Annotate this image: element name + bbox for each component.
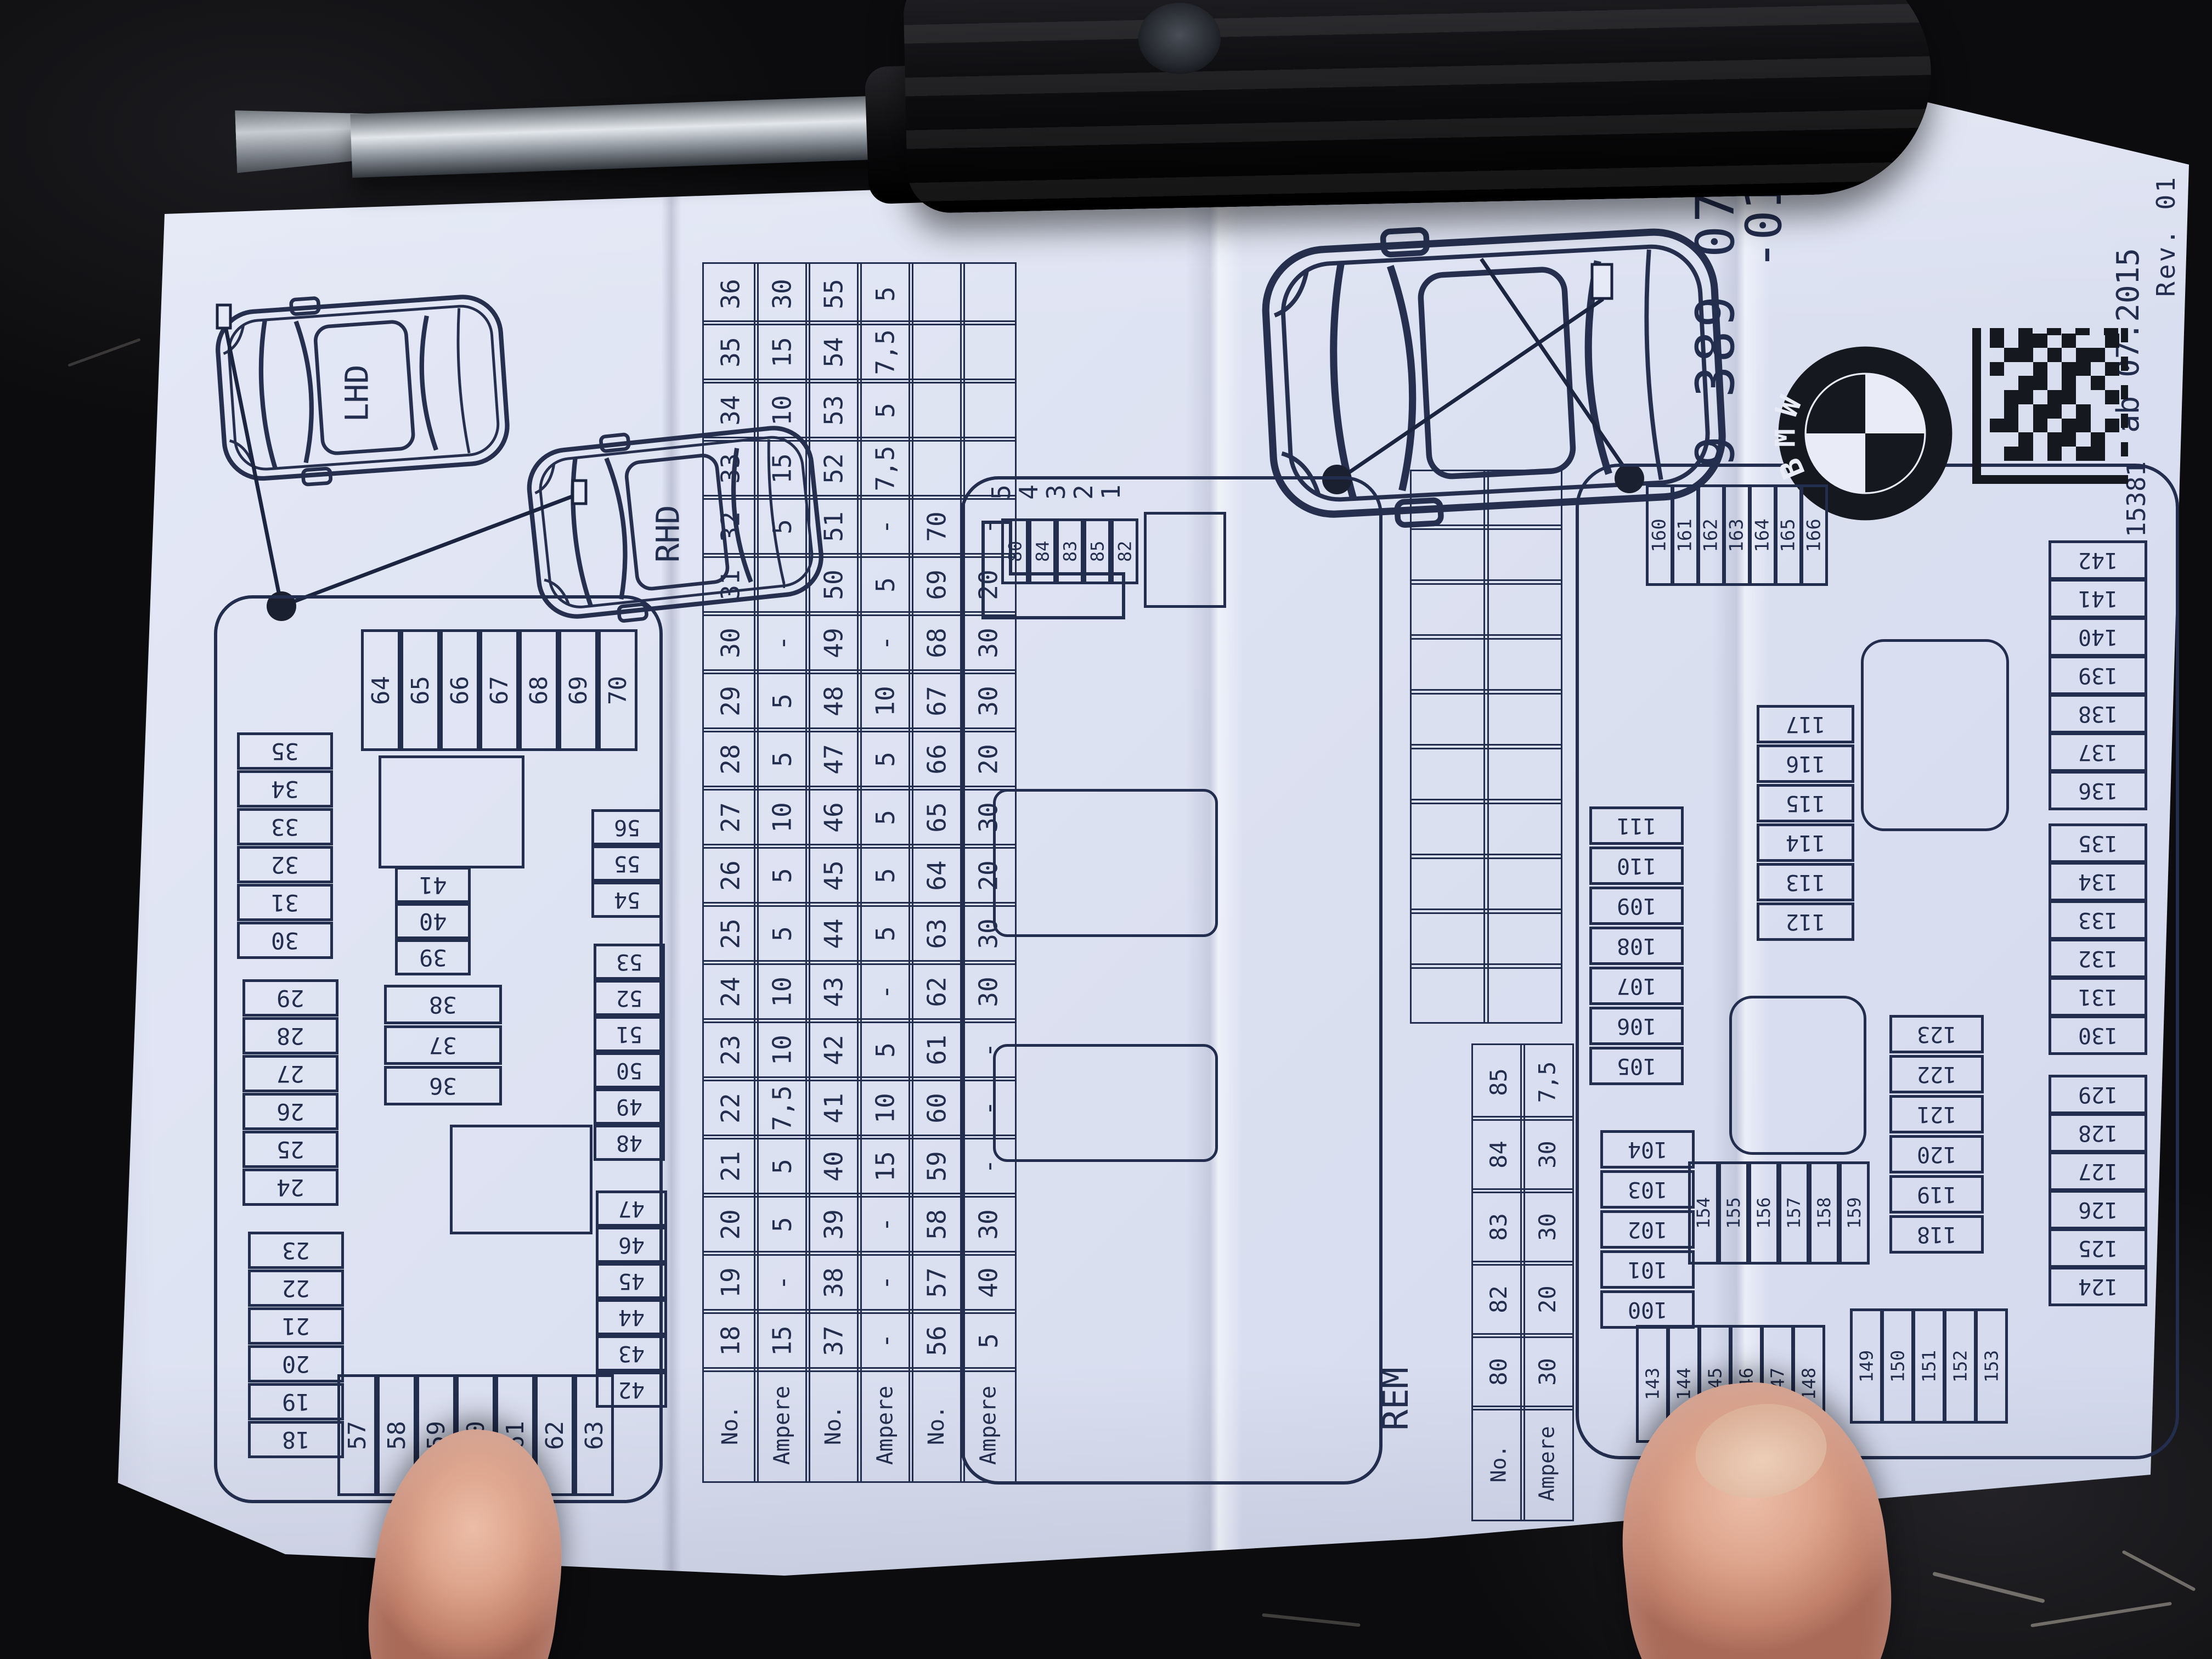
amp-table-cell: 29: [702, 669, 759, 732]
rem-table-cell: 83: [1471, 1188, 1525, 1266]
amp-table-cell: -: [857, 1251, 913, 1314]
amp-table-cell: -: [960, 495, 1017, 558]
fuse-box-135: 135: [2049, 823, 2147, 863]
amp-table-cell: 30: [960, 611, 1017, 674]
fuse-box-113: 113: [1757, 863, 1854, 901]
connector-grid-cell: [1483, 470, 1562, 530]
amp-table-cell: -: [857, 1309, 913, 1372]
fuse-box-103: 103: [1600, 1170, 1695, 1209]
fuse-box-130: 130: [2049, 1015, 2147, 1055]
fuse-box-165: 165: [1775, 484, 1802, 586]
fuse-box-68: 68: [519, 629, 558, 751]
fuse-box-37: 37: [384, 1025, 502, 1065]
amp-table-cell: 54: [805, 320, 862, 383]
fuse-box-109: 109: [1589, 887, 1684, 925]
amp-table-cell: 10: [857, 1076, 913, 1139]
fuse-box-50: 50: [594, 1052, 665, 1088]
fuse-box-119: 119: [1889, 1175, 1984, 1214]
fuse-box-22: 22: [248, 1269, 344, 1307]
fuse-box-117: 117: [1757, 705, 1854, 743]
amp-table-cell: 5: [857, 379, 913, 442]
fuse-box-118: 118: [1889, 1215, 1984, 1254]
amp-table-cell: 7,5: [857, 437, 913, 500]
fuse-box-82: 82: [1111, 518, 1138, 584]
fuse-box-70: 70: [598, 629, 637, 751]
rem-table-cell: 85: [1471, 1043, 1525, 1121]
fuse-box-52: 52: [594, 980, 665, 1016]
fuse-box-121: 121: [1889, 1095, 1984, 1133]
fuse-box-105: 105: [1589, 1047, 1684, 1085]
amp-table-cell: -: [754, 611, 810, 674]
rem-table-cell: 7,5: [1520, 1043, 1574, 1121]
amp-table-cell: [960, 437, 1017, 500]
connector-grid-cell: [1483, 689, 1562, 749]
fuse-box-38: 38: [384, 985, 502, 1024]
fuse-box-125: 125: [2049, 1228, 2147, 1268]
amp-table-cell: 15: [754, 1309, 810, 1372]
fuse-box-161: 161: [1672, 484, 1699, 586]
fuse-box-139: 139: [2049, 656, 2147, 695]
amp-table-cell: 69: [909, 553, 965, 616]
connector-grid-cell: [1483, 524, 1562, 585]
fuse-box-136: 136: [2049, 771, 2147, 810]
amp-table-cell: 23: [702, 1018, 759, 1081]
amp-table-cell: 58: [909, 1193, 965, 1256]
amp-table-cell: 30: [702, 611, 759, 674]
amp-table-cell: 59: [909, 1135, 965, 1198]
amp-table-cell: 5: [754, 727, 810, 791]
fuse-box-85: 85: [1084, 518, 1111, 584]
fuse-box-18: 18: [248, 1421, 344, 1458]
fuse-box-65: 65: [400, 629, 440, 751]
fuse-box-151: 151: [1912, 1308, 1945, 1424]
amp-table-cell: 52: [805, 437, 862, 500]
amp-table-cell: 7,5: [754, 1076, 810, 1139]
amp-table-cell: 61: [909, 1018, 965, 1081]
fuse-box-19: 19: [248, 1383, 344, 1420]
rem-table-cell: 84: [1471, 1116, 1525, 1193]
connector-grid-cell: [1410, 634, 1489, 695]
amp-table-cell: 28: [702, 727, 759, 791]
connector-grid-cell: [1410, 909, 1489, 969]
photo-scene: LHD RHD REM 9 389 074 -01 ab 07.2015 153…: [0, 0, 2212, 1659]
fuse-box-40: 40: [395, 903, 471, 939]
amp-table-header: No.: [909, 1367, 965, 1483]
amp-table-cell: 10: [754, 960, 810, 1023]
amp-table-cell: -: [754, 553, 810, 616]
amp-table-cell: 24: [702, 960, 759, 1023]
amp-table-cell: 10: [754, 786, 810, 849]
connector-grid-cell: [1483, 963, 1562, 1024]
fuse-box-164: 164: [1749, 484, 1776, 586]
rem-table-cell: 20: [1520, 1261, 1574, 1338]
fuse-box-100: 100: [1600, 1290, 1695, 1329]
fuse-box-160: 160: [1646, 484, 1673, 586]
amp-table-cell: 30: [960, 669, 1017, 732]
amp-table-cell: 20: [960, 727, 1017, 791]
fuse-box-157: 157: [1779, 1161, 1809, 1265]
slot-label-2: 2: [1073, 476, 1094, 508]
fuse-box-53: 53: [594, 944, 665, 980]
connector-grid-cell: [1483, 579, 1562, 640]
amp-table-cell: 45: [805, 844, 862, 907]
fuse-box-166: 166: [1801, 484, 1828, 586]
fuse-box-63: 63: [574, 1374, 614, 1496]
amp-table-cell: 10: [857, 669, 913, 732]
fuse-box-24: 24: [242, 1169, 338, 1206]
connector-grid-cell: [1483, 634, 1562, 695]
fuse-box-44: 44: [596, 1299, 667, 1335]
fuse-box-21: 21: [248, 1307, 344, 1345]
amp-table-cell: 26: [702, 844, 759, 907]
amp-table-cell: -: [960, 1076, 1017, 1139]
amp-table-cell: 19: [702, 1251, 759, 1314]
fuse-box-27: 27: [242, 1055, 338, 1092]
fuse-box-115: 115: [1757, 784, 1854, 822]
fuse-box-149: 149: [1850, 1308, 1883, 1424]
fuse-box-45: 45: [596, 1263, 667, 1299]
screwdriver-handle: [903, 0, 1934, 214]
amp-table-cell: 64: [909, 844, 965, 907]
connector-grid-cell: [1483, 854, 1562, 914]
amp-table-cell: 30: [960, 1193, 1017, 1256]
fuse-box-111: 111: [1589, 806, 1684, 845]
amp-table-cell: 5: [857, 1018, 913, 1081]
amp-table-cell: 10: [754, 379, 810, 442]
fuse-box-150: 150: [1881, 1308, 1914, 1424]
fuse-box-30: 30: [237, 922, 333, 959]
fuse-box-102: 102: [1600, 1210, 1695, 1249]
amp-table-cell: 48: [805, 669, 862, 732]
amp-table-cell: 44: [805, 902, 862, 965]
amp-table-cell: 22: [702, 1076, 759, 1139]
amp-table-cell: 5: [857, 844, 913, 907]
fuse-box-55: 55: [591, 845, 663, 882]
fuse-box-49: 49: [594, 1088, 665, 1125]
fuse-box-158: 158: [1809, 1161, 1839, 1265]
amp-table-cell: 30: [960, 960, 1017, 1023]
connector-grid-cell: [1483, 799, 1562, 859]
fuse-box-69: 69: [558, 629, 598, 751]
amp-table-cell: 27: [702, 786, 759, 849]
amp-table-cell: 51: [805, 495, 862, 558]
fuse-box-106: 106: [1589, 1007, 1684, 1045]
amp-table-cell: [960, 320, 1017, 383]
amp-table-cell: 56: [909, 1309, 965, 1372]
amp-table-cell: 15: [857, 1135, 913, 1198]
amp-table-cell: 5: [754, 844, 810, 907]
amp-table-cell: 55: [805, 262, 862, 325]
fuse-box-41: 41: [395, 867, 471, 903]
amp-table-cell: 5: [754, 902, 810, 965]
fuse-box-57: 57: [337, 1374, 377, 1496]
fuse-box-39: 39: [395, 939, 471, 975]
amp-table-cell: 5: [754, 1135, 810, 1198]
fuse-box-35: 35: [237, 732, 333, 770]
amp-table-cell: 39: [805, 1193, 862, 1256]
fuse-box-101: 101: [1600, 1250, 1695, 1289]
fuse-box-137: 137: [2049, 732, 2147, 772]
rem-table-cell: 82: [1471, 1261, 1525, 1338]
fuse-box-31: 31: [237, 884, 333, 921]
fuse-box-84: 84: [1029, 518, 1056, 584]
fuse-box-26: 26: [242, 1093, 338, 1130]
amp-table-cell: 68: [909, 611, 965, 674]
amp-table-cell: 15: [754, 437, 810, 500]
fuse-box-154: 154: [1688, 1161, 1719, 1265]
fuse-box-110: 110: [1589, 847, 1684, 885]
amp-table-cell: 35: [702, 320, 759, 383]
fuse-box-114: 114: [1757, 823, 1854, 862]
slot-label-4: 4: [1018, 476, 1040, 508]
fuse-box-107: 107: [1589, 967, 1684, 1005]
connector-grid-cell: [1410, 524, 1489, 585]
fuse-box-134: 134: [2049, 862, 2147, 901]
amp-table-cell: 20: [702, 1193, 759, 1256]
fuse-box-23: 23: [248, 1232, 344, 1269]
amp-table-cell: 21: [702, 1135, 759, 1198]
amp-table-cell: [960, 379, 1017, 442]
amp-table-cell: 5: [754, 495, 810, 558]
connector-grid-cell: [1410, 689, 1489, 749]
amp-table-cell: 5: [857, 553, 913, 616]
fuse-box-156: 156: [1748, 1161, 1779, 1265]
fuse-box-138: 138: [2049, 694, 2147, 733]
fuse-box-120: 120: [1889, 1135, 1984, 1173]
fuse-box-28: 28: [242, 1017, 338, 1054]
amp-table-cell: 38: [805, 1251, 862, 1314]
amp-table-cell: 5: [960, 1309, 1017, 1372]
connector-grid-cell: [1410, 963, 1489, 1024]
amp-table-cell: -: [857, 960, 913, 1023]
fuse-box-34: 34: [237, 770, 333, 808]
connector-grid-cell: [1410, 579, 1489, 640]
fuse-box-46: 46: [596, 1227, 667, 1263]
fuse-box-152: 152: [1944, 1308, 1977, 1424]
fuse-box-33: 33: [237, 808, 333, 845]
fuse-box-43: 43: [596, 1335, 667, 1372]
fuse-box-162: 162: [1697, 484, 1725, 586]
fuse-box-104: 104: [1600, 1130, 1695, 1169]
amp-table-header: No.: [702, 1367, 759, 1483]
amp-table-cell: 50: [805, 553, 862, 616]
amp-table-cell: 60: [909, 1076, 965, 1139]
amp-table-cell: -: [857, 1193, 913, 1256]
fuse-box-66: 66: [440, 629, 479, 751]
amp-table-cell: 42: [805, 1018, 862, 1081]
slot-label-1: 1: [1100, 476, 1122, 508]
amp-table-cell: 5: [754, 669, 810, 732]
fuse-box-141: 141: [2049, 579, 2147, 618]
amp-table-cell: 53: [805, 379, 862, 442]
fuse-box-155: 155: [1718, 1161, 1749, 1265]
amp-table-cell: 18: [702, 1309, 759, 1372]
rem-table-cell: 30: [1520, 1333, 1574, 1410]
amp-table-cell: 7,5: [857, 320, 913, 383]
amp-table-cell: -: [857, 611, 913, 674]
fuse-box-129: 129: [2049, 1075, 2147, 1114]
fuse-box-20: 20: [248, 1345, 344, 1383]
connector-grid-cell: [1410, 470, 1489, 530]
fuse-box-123: 123: [1889, 1015, 1984, 1053]
amp-table-cell: 20: [960, 844, 1017, 907]
fuse-box-54: 54: [591, 882, 663, 918]
fuse-box-122: 122: [1889, 1055, 1984, 1093]
connector-grid-cell: [1483, 909, 1562, 969]
amp-table-cell: 5: [857, 786, 913, 849]
amp-table-cell: 49: [805, 611, 862, 674]
amp-table-header: Ampere: [960, 1367, 1017, 1483]
amp-table-cell: -: [754, 1251, 810, 1314]
connector-grid-cell: [1410, 854, 1489, 914]
amp-table-cell: 43: [805, 960, 862, 1023]
fuse-box-163: 163: [1723, 484, 1751, 586]
amp-table-cell: 63: [909, 902, 965, 965]
fuse-box-128: 128: [2049, 1113, 2147, 1153]
amp-table-cell: 34: [702, 379, 759, 442]
fuse-box-140: 140: [2049, 617, 2147, 657]
fuse-box-56: 56: [591, 809, 663, 845]
amp-table-cell: 46: [805, 786, 862, 849]
amp-table-cell: [909, 437, 965, 500]
fuse-box-124: 124: [2049, 1267, 2147, 1306]
amp-table-cell: 5: [857, 727, 913, 791]
amp-table-cell: 31: [702, 553, 759, 616]
amp-table-cell: [909, 262, 965, 325]
amp-table-cell: 30: [754, 262, 810, 325]
connector-grid-cell: [1483, 744, 1562, 804]
connector-grid-cell: [1410, 799, 1489, 859]
fuse-box-116: 116: [1757, 744, 1854, 783]
amp-table-cell: 5: [857, 902, 913, 965]
rem-table-cell: 30: [1520, 1188, 1574, 1266]
amp-table-cell: -: [960, 1018, 1017, 1081]
fuse-box-47: 47: [596, 1190, 667, 1227]
fuse-box-159: 159: [1839, 1161, 1870, 1265]
fuse-box-29: 29: [242, 979, 338, 1017]
rem-table-header: Ampere: [1520, 1406, 1574, 1521]
amp-table-cell: 30: [960, 786, 1017, 849]
fuse-box-32: 32: [237, 846, 333, 883]
rem-table-header: No.: [1471, 1406, 1525, 1521]
amp-table-header: No.: [805, 1367, 862, 1483]
fuse-box-142: 142: [2049, 540, 2147, 580]
amp-table-cell: 15: [754, 320, 810, 383]
amp-table-cell: [960, 262, 1017, 325]
amp-table-cell: 5: [754, 1193, 810, 1256]
screwdriver-handle-hole: [1138, 3, 1221, 74]
amp-table-cell: 5: [857, 262, 913, 325]
amp-table-cell: 65: [909, 786, 965, 849]
amp-table-cell: 57: [909, 1251, 965, 1314]
amp-table-cell: 47: [805, 727, 862, 791]
amp-table-cell: 67: [909, 669, 965, 732]
amp-table-cell: [909, 379, 965, 442]
fuse-box-112: 112: [1757, 902, 1854, 941]
fuse-box-108: 108: [1589, 927, 1684, 965]
rem-table-cell: 80: [1471, 1333, 1525, 1410]
fuse-box-67: 67: [479, 629, 519, 751]
amp-table-cell: 70: [909, 495, 965, 558]
amp-table-cell: 36: [702, 262, 759, 325]
amp-table-cell: 20: [960, 553, 1017, 616]
fuse-box-133: 133: [2049, 900, 2147, 940]
fuse-box-132: 132: [2049, 939, 2147, 978]
fuse-box-127: 127: [2049, 1152, 2147, 1191]
amp-table-cell: 25: [702, 902, 759, 965]
amp-table-cell: 10: [754, 1018, 810, 1081]
amp-table-cell: 37: [805, 1309, 862, 1372]
amp-table-header: Ampere: [857, 1367, 913, 1483]
fuse-box-131: 131: [2049, 977, 2147, 1017]
amp-table-cell: 30: [960, 902, 1017, 965]
fuse-box-51: 51: [594, 1016, 665, 1052]
amp-table-cell: 40: [805, 1135, 862, 1198]
amp-table-cell: -: [857, 495, 913, 558]
fuse-box-83: 83: [1056, 518, 1084, 584]
amp-table-cell: 66: [909, 727, 965, 791]
amp-table-cell: 62: [909, 960, 965, 1023]
connector-grid-cell: [1410, 744, 1489, 804]
fuse-box-25: 25: [242, 1131, 338, 1168]
amp-table-cell: 41: [805, 1076, 862, 1139]
fuse-box-36: 36: [384, 1066, 502, 1105]
amp-table-cell: 32: [702, 495, 759, 558]
slot-label-3: 3: [1045, 476, 1067, 508]
fuse-box-126: 126: [2049, 1190, 2147, 1229]
fuse-box-48: 48: [594, 1125, 665, 1161]
amp-table-cell: 33: [702, 437, 759, 500]
rem-table-cell: 30: [1520, 1116, 1574, 1193]
fuse-box-153: 153: [1975, 1308, 2008, 1424]
amp-table-cell: 40: [960, 1251, 1017, 1314]
amp-table-header: Ampere: [754, 1367, 810, 1483]
amp-table-cell: [909, 320, 965, 383]
fuse-box-64: 64: [361, 629, 400, 751]
amp-table-cell: -: [960, 1135, 1017, 1198]
